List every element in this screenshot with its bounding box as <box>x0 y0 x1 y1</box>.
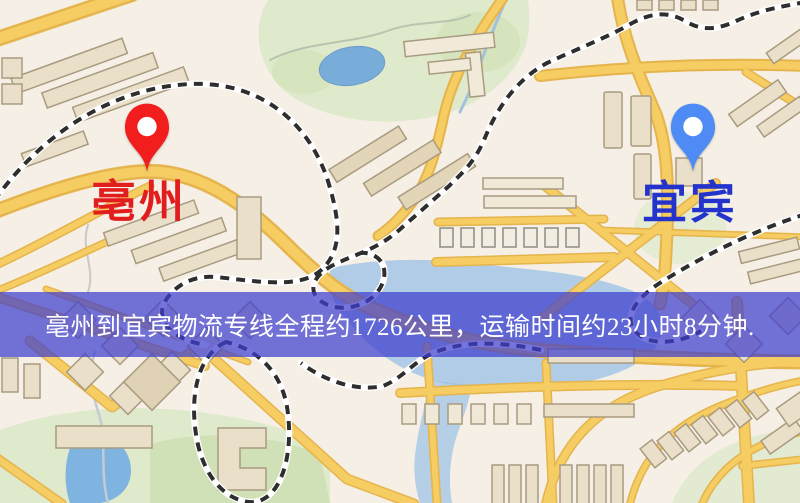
map-canvas: 亳州 宜宾 亳州到宜宾物流专线全程约1726公里，运输时间约23小时8分钟. <box>0 0 800 503</box>
pin-body <box>671 104 715 172</box>
destination-pin[interactable] <box>666 101 720 175</box>
location-pin-icon <box>120 101 174 175</box>
map-background <box>0 0 800 503</box>
pin-hole <box>683 117 702 136</box>
destination-city-label: 宜宾 <box>642 180 738 225</box>
pin-body <box>125 104 169 172</box>
route-info-banner: 亳州到宜宾物流专线全程约1726公里，运输时间约23小时8分钟. <box>0 292 800 357</box>
location-pin-icon <box>666 101 720 175</box>
pin-hole <box>137 117 156 136</box>
origin-pin[interactable] <box>120 101 174 175</box>
origin-city-label: 亳州 <box>91 179 187 224</box>
route-info-text: 亳州到宜宾物流专线全程约1726公里，运输时间约23小时8分钟. <box>45 307 755 343</box>
